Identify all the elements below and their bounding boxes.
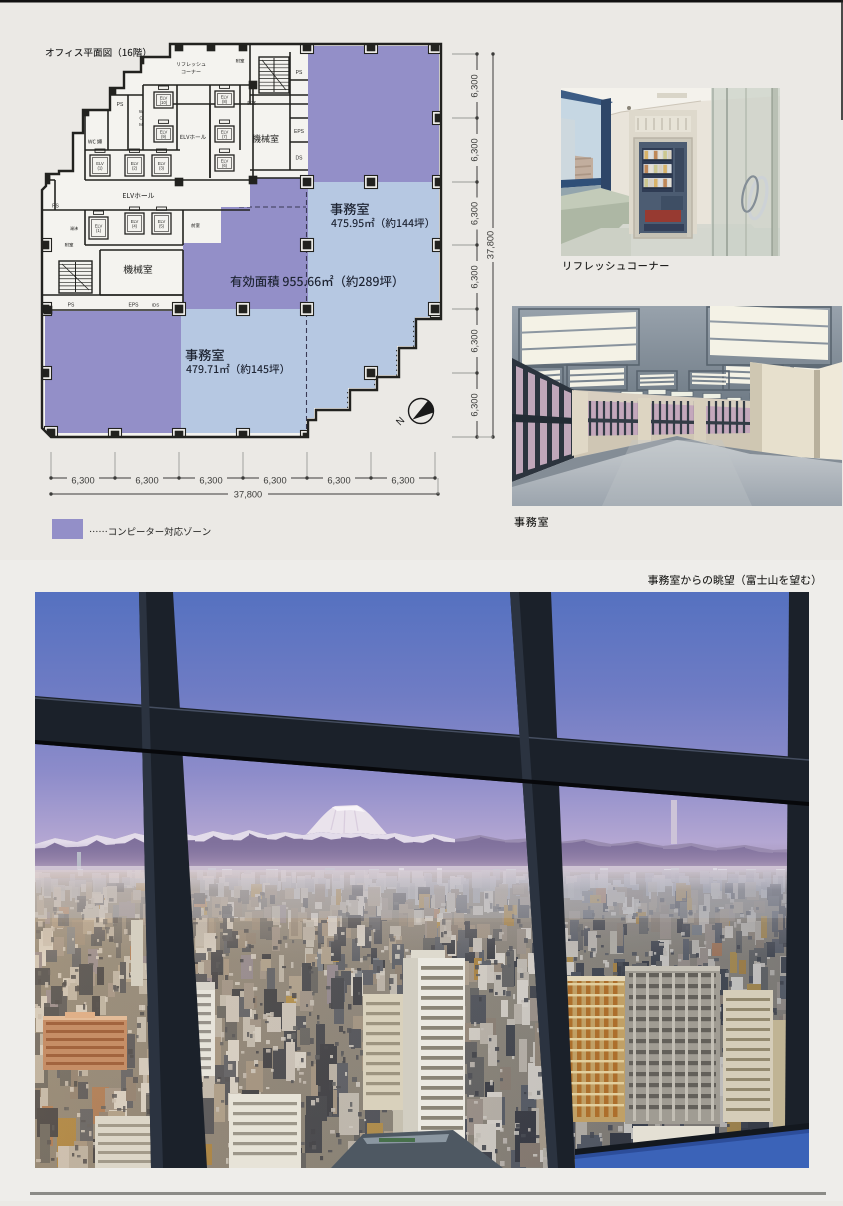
svg-text:(4): (4) xyxy=(132,224,138,229)
svg-text:6,300: 6,300 xyxy=(470,393,480,416)
svg-text:6,300: 6,300 xyxy=(135,476,158,486)
svg-text:(3): (3) xyxy=(159,166,165,171)
svg-text:IDS: IDS xyxy=(152,303,160,308)
svg-text:6,300: 6,300 xyxy=(470,329,480,352)
svg-text:6,300: 6,300 xyxy=(470,74,480,97)
svg-text:(5): (5) xyxy=(159,224,165,229)
svg-text:(8): (8) xyxy=(222,99,228,104)
svg-text:(6): (6) xyxy=(222,163,228,168)
svg-text:EPS: EPS xyxy=(294,129,305,135)
svg-text:6,300: 6,300 xyxy=(470,265,480,288)
svg-text:(10): (10) xyxy=(160,100,168,105)
svg-text:DS: DS xyxy=(296,156,304,162)
svg-text:6,300: 6,300 xyxy=(327,476,350,486)
svg-text:W: W xyxy=(139,109,144,114)
svg-text:(9): (9) xyxy=(161,134,167,139)
svg-text:(2): (2) xyxy=(132,166,138,171)
svg-text:PS: PS xyxy=(296,70,303,76)
svg-text:(1): (1) xyxy=(97,166,103,171)
svg-text:(1): (1) xyxy=(96,228,102,233)
svg-text:6,300: 6,300 xyxy=(263,476,286,486)
svg-text:6,300: 6,300 xyxy=(470,202,480,225)
svg-text:M: M xyxy=(139,122,143,127)
svg-text:37,800: 37,800 xyxy=(486,231,496,259)
svg-text:EPS: EPS xyxy=(128,303,139,309)
svg-text:PS: PS xyxy=(68,303,75,309)
svg-text:37,800: 37,800 xyxy=(234,490,262,500)
svg-text:(7): (7) xyxy=(222,134,228,139)
svg-text:6,300: 6,300 xyxy=(470,138,480,161)
svg-text:PS: PS xyxy=(117,102,124,108)
svg-text:PS: PS xyxy=(52,204,59,210)
svg-text:6,300: 6,300 xyxy=(71,476,94,486)
svg-text:6,300: 6,300 xyxy=(391,476,414,486)
svg-text:6,300: 6,300 xyxy=(199,476,222,486)
